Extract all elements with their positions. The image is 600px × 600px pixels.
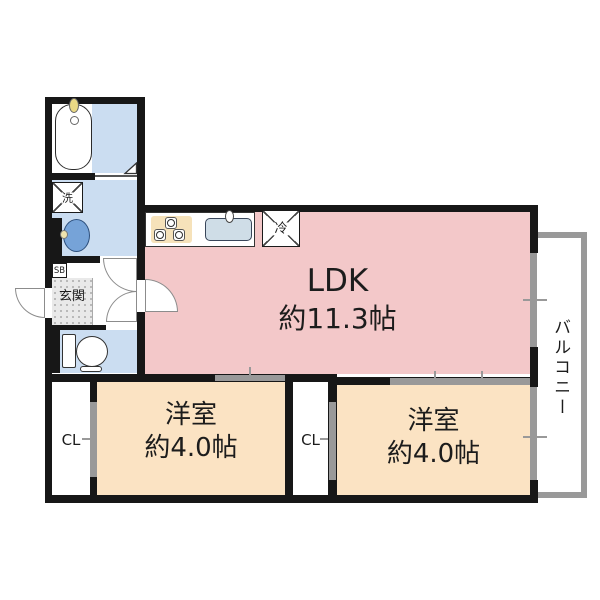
shoe-box-label: SB xyxy=(54,266,65,276)
closet-door-middle xyxy=(329,402,336,480)
wall xyxy=(45,97,145,104)
bath-door-icon xyxy=(123,162,138,175)
wall xyxy=(137,312,145,382)
door-tick xyxy=(481,371,483,385)
fridge-label: 冷 xyxy=(273,222,288,235)
bedroom-left-label: 洋室 約4.0帖 xyxy=(97,399,285,464)
bath-faucet-icon xyxy=(69,98,79,113)
stove-icon xyxy=(151,216,192,243)
room-size: 約4.0帖 xyxy=(337,438,530,471)
balcony-wall-top xyxy=(538,232,587,238)
entrance-door-arc xyxy=(15,288,45,318)
fridge-place-icon: 冷 xyxy=(262,210,300,247)
room-name: 洋室 xyxy=(97,399,285,432)
closet-left-label: CL xyxy=(52,431,90,450)
wall xyxy=(137,205,538,212)
wall xyxy=(45,495,538,503)
washbasin-faucet-icon xyxy=(60,230,68,239)
toilet-door-arc xyxy=(106,291,137,322)
shoe-box-icon: SB xyxy=(52,263,67,278)
bathtub-icon xyxy=(55,104,92,170)
wall xyxy=(45,173,95,180)
toilet-base-icon xyxy=(80,366,102,372)
wall xyxy=(90,477,97,495)
balcony-wall-bottom xyxy=(538,492,587,498)
door-tick xyxy=(249,367,251,381)
wall xyxy=(530,205,538,253)
window-bedroom xyxy=(530,387,537,480)
ldk-label: LDK 約11.3帖 xyxy=(145,262,530,336)
bath-door-track xyxy=(95,175,137,177)
wall xyxy=(137,97,145,280)
room-name: LDK xyxy=(145,262,530,301)
entrance-label: 玄関 xyxy=(50,289,94,305)
kitchen-faucet-icon xyxy=(225,210,234,223)
closet-door-left xyxy=(90,402,97,477)
bedroom-right-label: 洋室 約4.0帖 xyxy=(337,405,530,470)
door-tick xyxy=(434,371,436,385)
balcony-label: バルコニー xyxy=(538,298,581,438)
balcony-wall-right xyxy=(581,232,587,498)
bath-drain-icon xyxy=(70,116,79,125)
room-size: 約11.3帖 xyxy=(145,301,530,336)
closet-middle-label: CL xyxy=(291,431,330,450)
wall xyxy=(90,382,97,402)
washer-label: 洗 xyxy=(61,192,74,203)
toilet-tank-icon xyxy=(62,334,76,368)
room-size: 約4.0帖 xyxy=(97,432,285,465)
room-name: 洋室 xyxy=(337,405,530,438)
floor-plan: 洗 SB 冷 LDK 約11.3帖 洋室 約4.0帖 洋室 約4.0帖 バルコニ… xyxy=(0,0,600,600)
washer-place-icon: 洗 xyxy=(52,182,83,213)
wall xyxy=(48,330,60,373)
wall xyxy=(45,374,337,382)
toilet-bowl-icon xyxy=(76,336,108,367)
sliding-door-bedroom-right xyxy=(390,378,530,385)
washroom-door-arc xyxy=(103,258,137,292)
